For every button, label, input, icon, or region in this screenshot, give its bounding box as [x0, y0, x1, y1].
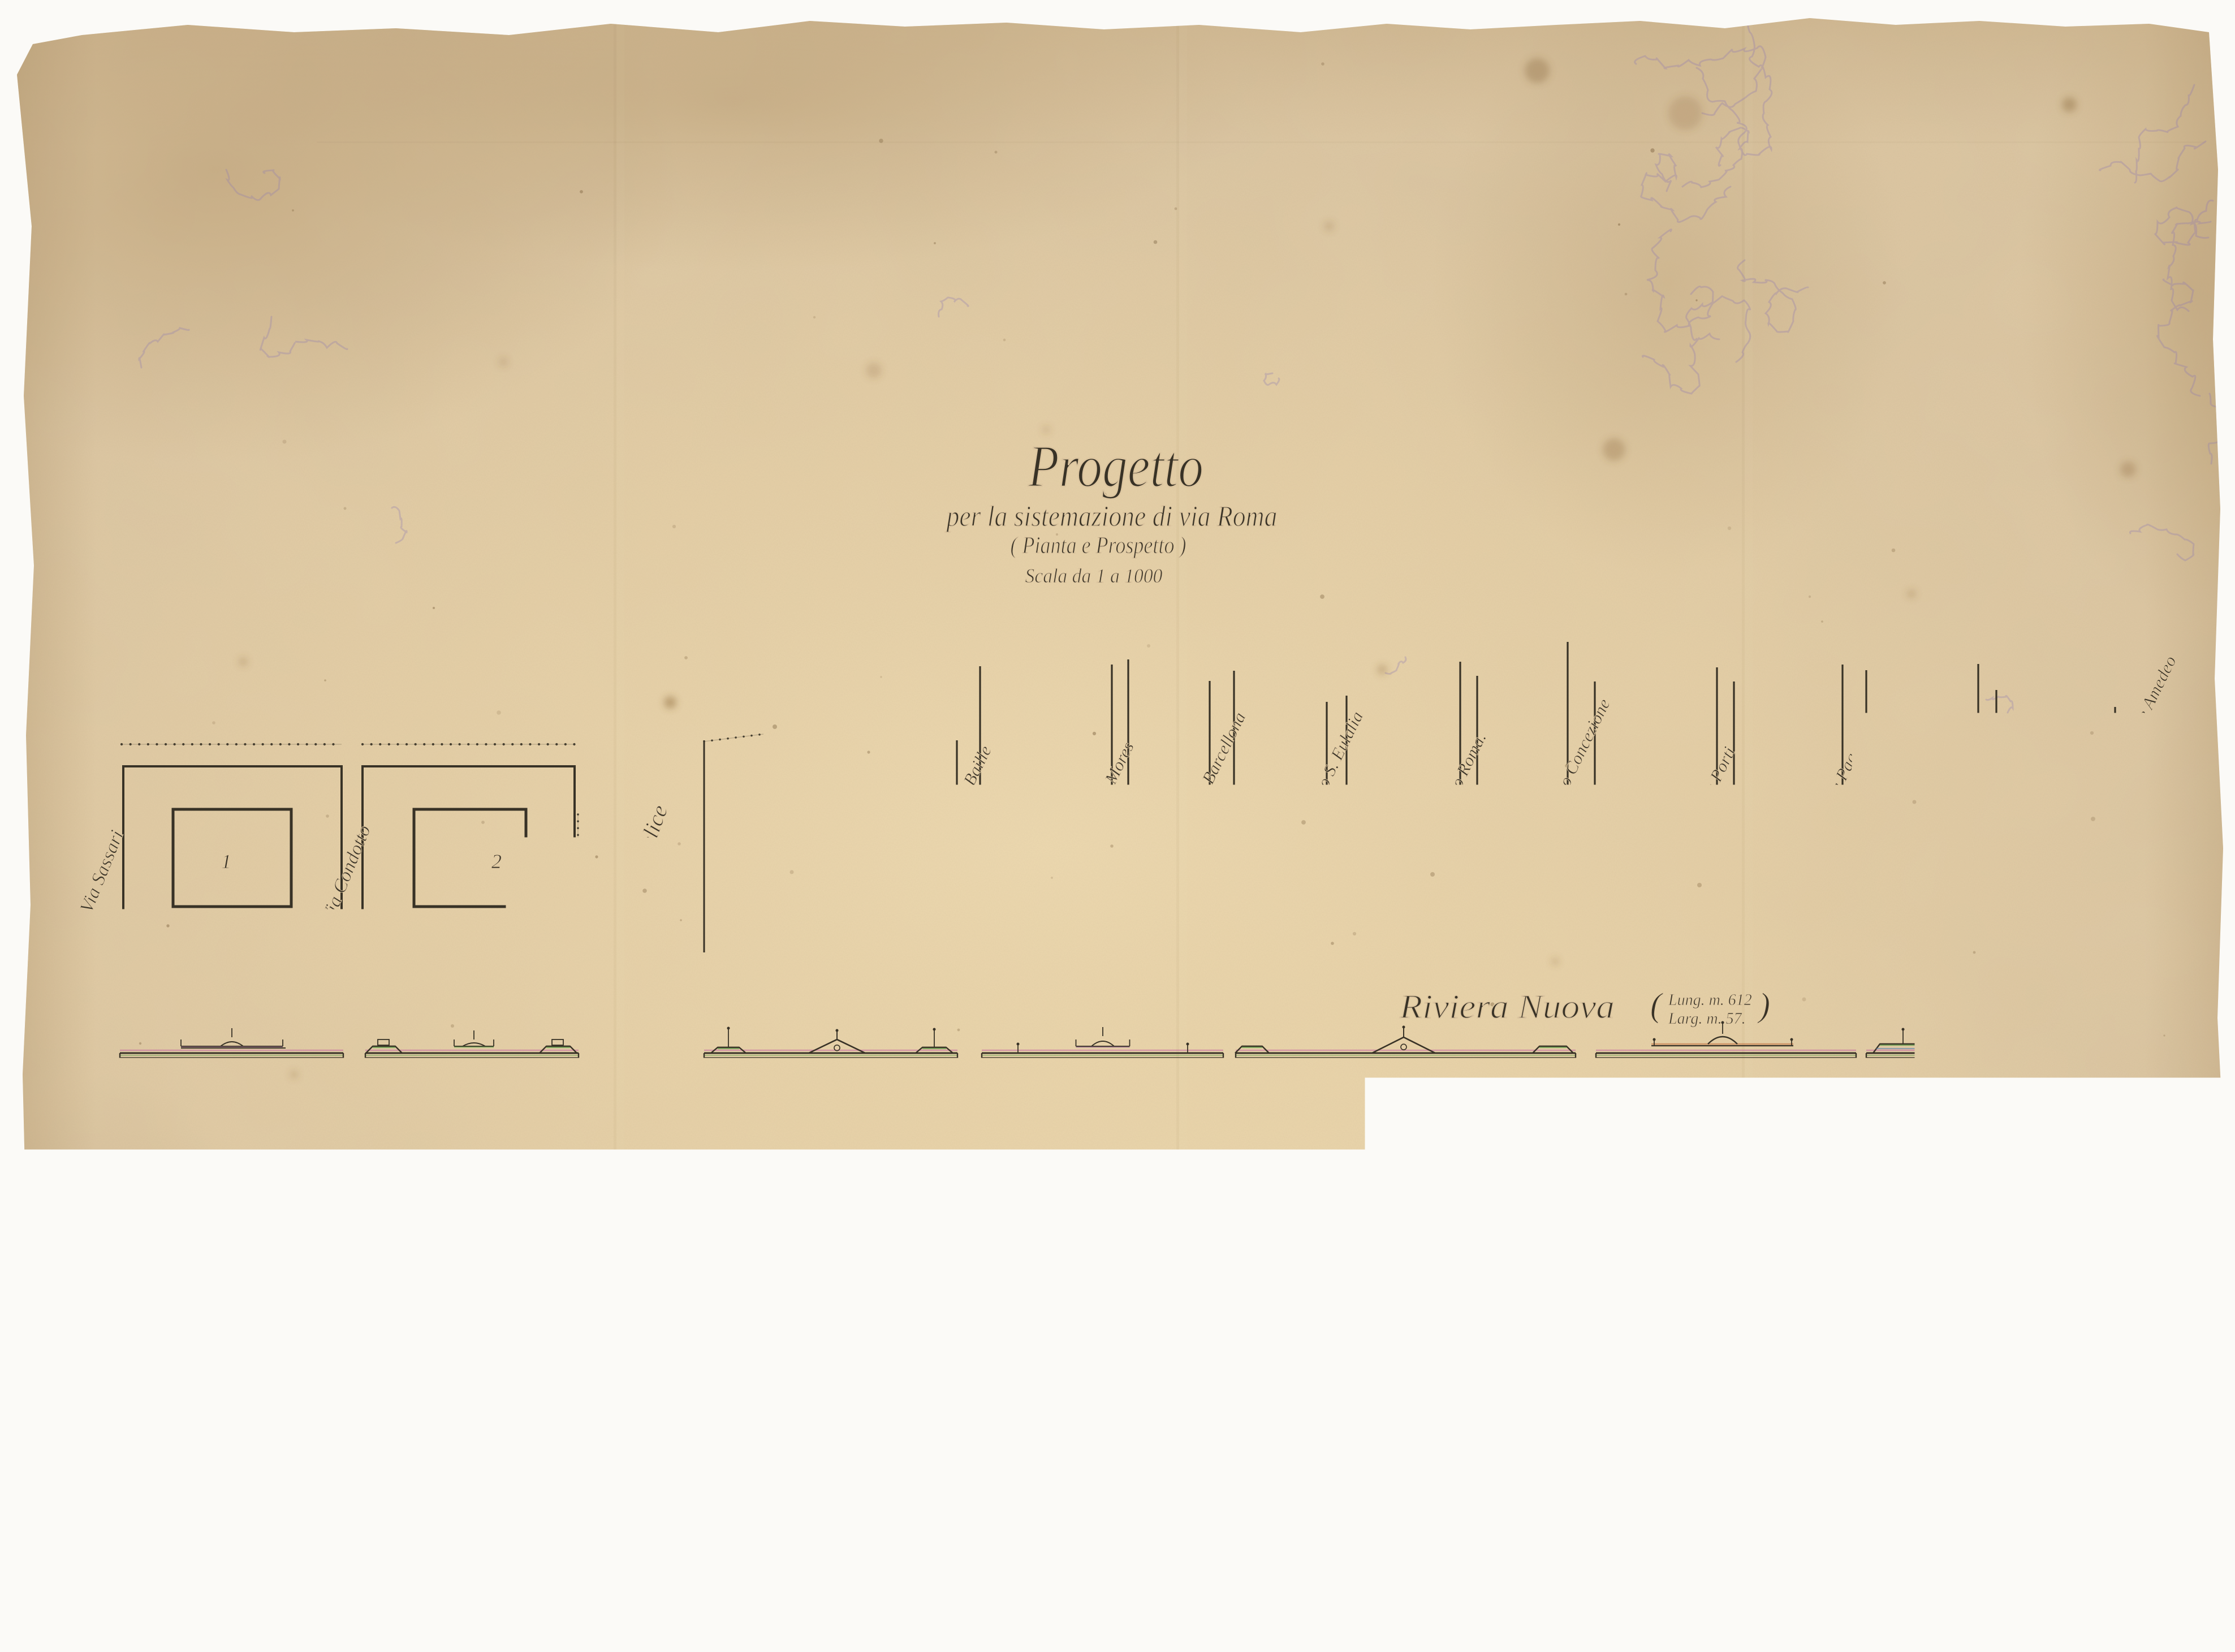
svg-text:5: 5 — [1454, 896, 1464, 918]
svg-text:Scala da 1 a 1000: Scala da 1 a 1000 — [1025, 564, 1163, 587]
svg-text:Riviera Nuova: Riviera Nuova — [1399, 988, 1615, 1025]
svg-text:m. 102.: m. 102. — [1379, 1147, 1425, 1164]
svg-text:m. 75.: m. 75. — [1973, 1145, 2010, 1162]
svg-text:m. 75.: m. 75. — [1699, 1147, 1737, 1164]
svg-text:m. 76: m. 76 — [810, 1150, 844, 1167]
svg-text:Lung. m. 612: Lung. m. 612 — [1668, 991, 1752, 1009]
svg-text:3: 3 — [823, 791, 834, 813]
svg-text:m 69: m 69 — [1078, 1150, 1109, 1167]
svg-text:Via Roma: Via Roma — [1390, 818, 1638, 860]
svg-text:): ) — [1757, 986, 1770, 1024]
svg-text:Lung. m. 342.: Lung. m. 342. — [1664, 823, 1753, 841]
svg-text:1: 1 — [221, 850, 231, 873]
svg-text:6: 6 — [1718, 896, 1728, 918]
svg-text:Galleria: Galleria — [776, 838, 856, 861]
svg-text:(: ( — [1646, 819, 1659, 857]
svg-text:Schizzo del Prospetto della Ri: Schizzo del Prospetto della Riviera nuov… — [869, 1187, 1364, 1224]
svg-text:Progetto: Progetto — [1028, 433, 1203, 499]
svg-text:Larg. m. 57.: Larg. m. 57. — [1668, 1010, 1746, 1028]
svg-text:): ) — [1756, 819, 1770, 857]
svg-text:m 66: m 66 — [218, 1157, 249, 1174]
svg-text:7: 7 — [1988, 896, 1999, 918]
svg-text:( Pianta e Prospetto ): ( Pianta e Prospetto ) — [1011, 533, 1186, 559]
svg-text:2: 2 — [491, 850, 502, 873]
svg-text:per la sistemazione di via Rom: per la sistemazione di via Roma — [944, 501, 1278, 533]
svg-text:m 64: m 64 — [454, 1157, 484, 1174]
svg-text:4: 4 — [1122, 896, 1132, 918]
svg-text:Larg. m 18.: Larg. m 18. — [1664, 842, 1738, 860]
